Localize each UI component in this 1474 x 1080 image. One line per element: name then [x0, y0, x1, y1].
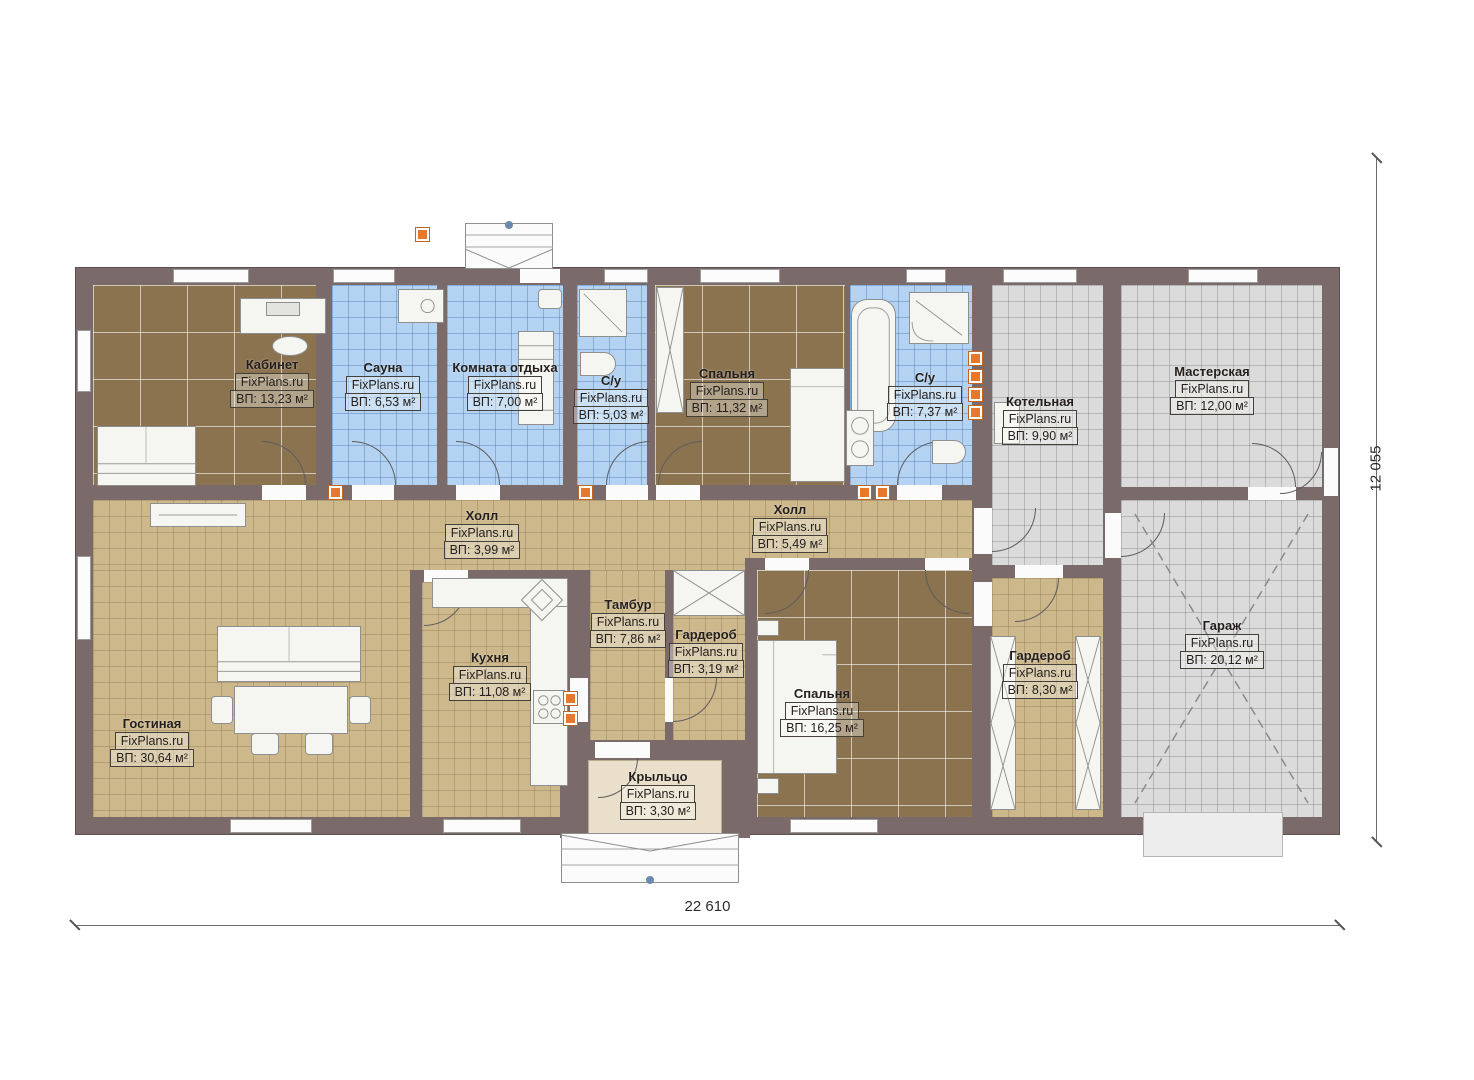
nightstand	[757, 778, 779, 794]
door-gap-kryltso	[595, 742, 650, 758]
door-gap-top-porch	[520, 269, 560, 283]
door-gap-kotelnaya	[974, 508, 992, 554]
bottom-porch-steps	[561, 833, 739, 885]
door-gap-tambur-garderob	[665, 678, 673, 722]
dimension-width-label: 22 610	[75, 898, 1340, 915]
room-label-kotelnaya: Котельная FixPlans.ru ВП: 9,90 м²	[965, 394, 1115, 445]
vent-icon	[564, 692, 577, 705]
door-gap-su-2	[897, 485, 942, 500]
window	[604, 269, 648, 283]
window	[77, 556, 91, 640]
room-label-gostinaya: Гостиная FixPlans.ru ВП: 30,64 м²	[77, 716, 227, 767]
top-porch-steps	[465, 223, 553, 269]
chair	[349, 696, 371, 724]
room-label-kuhnya: Кухня FixPlans.ru ВП: 11,08 м²	[415, 650, 565, 701]
vent-icon	[858, 486, 871, 499]
toilet	[932, 440, 966, 464]
window	[790, 819, 878, 833]
printer	[266, 302, 300, 316]
room-label-garazh: Гараж FixPlans.ru ВП: 20,12 м²	[1147, 618, 1297, 669]
sauna-stove	[398, 289, 444, 323]
door-gap-komnata	[456, 485, 500, 500]
dimension-tick	[1372, 152, 1383, 163]
dimension-tick	[1372, 836, 1383, 847]
room-label-masterskaya: Мастерская FixPlans.ru ВП: 12,00 м²	[1137, 364, 1287, 415]
window	[1003, 269, 1077, 283]
door-gap-spalnya-1	[656, 485, 700, 500]
dimension-line-width	[75, 925, 1340, 926]
window	[1188, 269, 1258, 283]
desk-chair	[272, 336, 308, 356]
room-label-kryltso: Крыльцо FixPlans.ru ВП: 3,30 м²	[583, 769, 733, 820]
tv-cabinet	[150, 503, 246, 527]
door-gap-spalnya-2-left	[765, 558, 809, 570]
window	[230, 819, 312, 833]
door-gap-garazh	[1105, 513, 1121, 558]
room-label-garderob-2: Гардероб FixPlans.ru ВП: 8,30 м²	[965, 648, 1115, 699]
door-gap-kabinet	[262, 485, 306, 500]
vent-icon	[579, 486, 592, 499]
room-label-spalnya-1: Спальня FixPlans.ru ВП: 11,32 м²	[652, 366, 802, 417]
room-label-spalnya-2: Спальня FixPlans.ru ВП: 16,25 м²	[747, 686, 897, 737]
door-gap-sauna	[352, 485, 394, 500]
door-gap-su-1	[606, 485, 648, 500]
vent-icon	[876, 486, 889, 499]
window	[906, 269, 946, 283]
door-gap-garderob-2-side	[974, 582, 992, 626]
chair	[305, 733, 333, 755]
room-label-holl-2: Холл FixPlans.ru ВП: 5,49 м²	[715, 502, 865, 553]
door-gap-masterskaya-ext	[1324, 448, 1338, 496]
vent-icon	[564, 712, 577, 725]
dimension-height-label: 12 055	[1368, 429, 1385, 509]
floor-plan-canvas: Кабинет FixPlans.ru ВП: 13,23 м² Сауна F…	[0, 0, 1474, 1080]
garage-gate	[1143, 812, 1283, 857]
corner-shower	[909, 292, 969, 344]
vent-icon	[416, 228, 429, 241]
window	[173, 269, 249, 283]
window	[77, 330, 91, 392]
window	[333, 269, 395, 283]
door-gap-garderob-2	[1015, 565, 1063, 578]
window	[700, 269, 780, 283]
chair	[251, 733, 279, 755]
vent-icon	[969, 352, 982, 365]
dining-table	[234, 686, 348, 734]
sink	[538, 289, 562, 309]
room-label-holl-1: Холл FixPlans.ru ВП: 3,99 м²	[407, 508, 557, 559]
sofa	[217, 626, 361, 682]
office-sofa	[97, 426, 196, 486]
door-gap-spalnya-2-right	[925, 558, 969, 570]
window	[443, 819, 521, 833]
room-label-garderob-1: Гардероб FixPlans.ru ВП: 3,19 м²	[631, 627, 781, 678]
shower	[579, 289, 627, 337]
vent-icon	[329, 486, 342, 499]
